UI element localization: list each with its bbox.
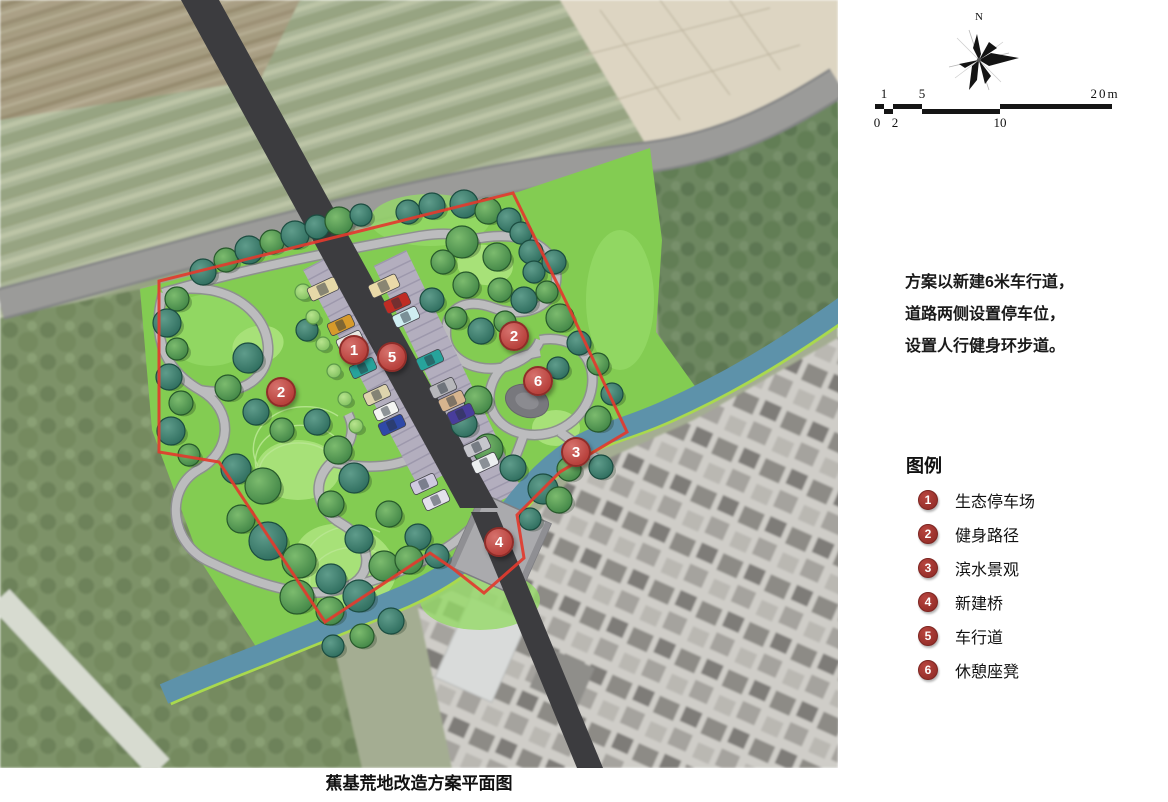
scale-bar: 1 5 20m 0 2 10	[875, 86, 1112, 120]
tree	[306, 310, 320, 324]
map-marker-2: 2	[266, 377, 296, 407]
tree	[270, 418, 294, 442]
legend-item: 4 新建桥	[906, 590, 1035, 614]
legend-item: 3 滨水景观	[906, 556, 1035, 580]
tree	[245, 468, 281, 504]
legend-title: 图例	[906, 452, 1035, 478]
legend-label: 滨水景观	[955, 556, 1019, 580]
tree	[157, 417, 185, 445]
legend-label: 休憩座凳	[955, 658, 1019, 682]
tree	[488, 278, 512, 302]
legend-badge-3: 3	[918, 558, 938, 578]
legend-badge-6: 6	[918, 660, 938, 680]
tree	[338, 392, 352, 406]
tree	[585, 406, 611, 432]
tree	[345, 525, 373, 553]
scale-label-5: 5	[919, 86, 926, 102]
legend-label: 新建桥	[955, 590, 1003, 614]
legend-label: 健身路径	[955, 522, 1019, 546]
legend-label: 车行道	[955, 624, 1003, 648]
tree	[325, 207, 353, 235]
tree	[165, 287, 189, 311]
scale-bar-blocks	[875, 104, 1112, 114]
tree	[546, 487, 572, 513]
tree	[169, 391, 193, 415]
tree	[589, 455, 613, 479]
legend-item: 6 休憩座凳	[906, 658, 1035, 682]
site-plan-drawing	[0, 0, 838, 768]
legend-badge-1: 1	[918, 490, 938, 510]
tree	[349, 419, 363, 433]
tree	[453, 272, 479, 298]
tree	[316, 564, 346, 594]
tree	[324, 436, 352, 464]
tree	[153, 309, 181, 337]
tree	[318, 491, 344, 517]
scale-label-10: 10	[994, 115, 1007, 131]
tree	[233, 343, 263, 373]
tree	[536, 281, 558, 303]
tree	[166, 338, 188, 360]
plan-caption: 蕉基荒地改造方案平面图	[0, 769, 838, 794]
tree	[511, 287, 537, 313]
scale-label-0: 0	[874, 115, 881, 131]
map-marker-5: 5	[377, 342, 407, 372]
tree	[468, 318, 494, 344]
legend-badge-4: 4	[918, 592, 938, 612]
design-note-line: 设置人行健身环步道。	[905, 336, 1120, 357]
tree	[376, 501, 402, 527]
legend-label: 生态停车场	[955, 488, 1035, 512]
tree	[327, 364, 341, 378]
legend-badge-2: 2	[918, 524, 938, 544]
tree	[243, 399, 269, 425]
tree	[378, 608, 404, 634]
north-label: N	[975, 11, 983, 23]
design-note-line: 道路两侧设置停车位，	[905, 304, 1120, 325]
tree	[420, 288, 444, 312]
tree	[322, 635, 344, 657]
legend-item: 1 生态停车场	[906, 488, 1035, 512]
tree	[214, 248, 238, 272]
legend-item: 5 车行道	[906, 624, 1035, 648]
tree	[483, 243, 511, 271]
tree	[282, 544, 316, 578]
tree	[445, 307, 467, 329]
tree	[215, 375, 241, 401]
design-note-line: 方案以新建6米车行道，	[905, 272, 1120, 293]
legend-badge-5: 5	[918, 626, 938, 646]
scale-label-1: 1	[881, 86, 888, 102]
tree	[519, 240, 543, 264]
tree	[567, 331, 591, 355]
tree	[350, 204, 372, 226]
tree	[316, 337, 330, 351]
tree	[431, 250, 455, 274]
map-marker-6: 6	[523, 366, 553, 396]
tree	[339, 463, 369, 493]
legend-item: 2 健身路径	[906, 522, 1035, 546]
map-marker-3: 3	[561, 437, 591, 467]
map-marker-4: 4	[484, 527, 514, 557]
plan-sheet: 1522634 N 1 5 20m 0 2 1	[0, 0, 1168, 802]
site-plan-map: 1522634	[0, 0, 838, 768]
design-note: 方案以新建6米车行道， 道路两侧设置停车位， 设置人行健身环步道。	[905, 272, 1120, 368]
scale-label-20m: 20m	[1090, 86, 1119, 102]
legend: 图例 1 生态停车场 2 健身路径 3 滨水景观 4 新建桥 5 车行道 6 休…	[906, 452, 1035, 682]
tree	[350, 624, 374, 648]
map-marker-1: 1	[339, 335, 369, 365]
tree	[500, 455, 526, 481]
scale-label-2: 2	[892, 115, 899, 131]
tree	[304, 409, 330, 435]
map-marker-2: 2	[499, 321, 529, 351]
